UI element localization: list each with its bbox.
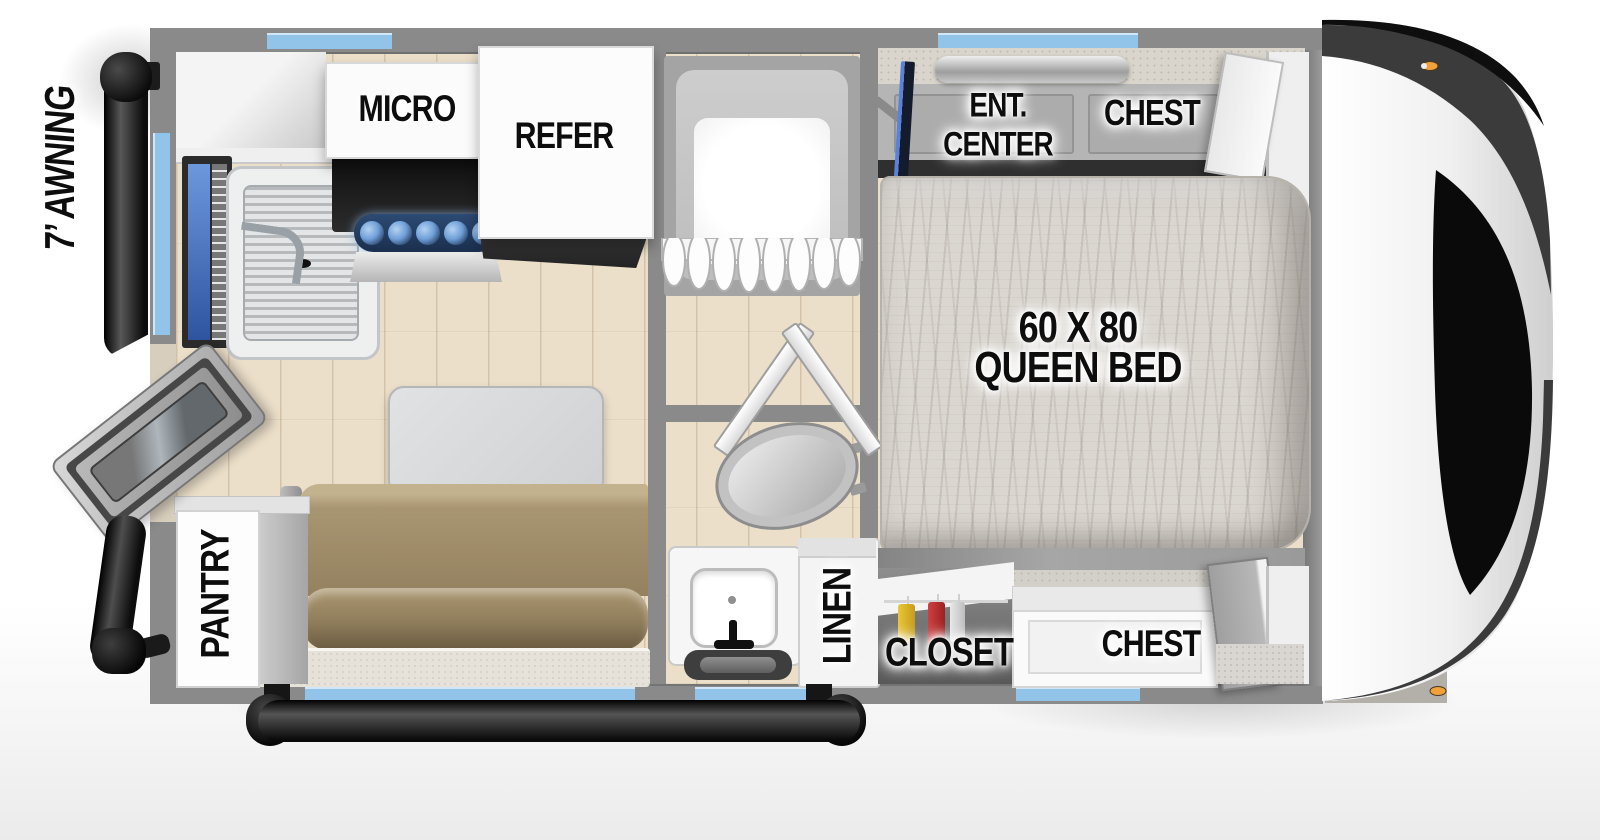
burner-icon xyxy=(388,221,412,245)
corner-cabinet xyxy=(176,52,326,162)
marker-light-icon xyxy=(1422,62,1438,71)
vanity-drain xyxy=(728,596,736,604)
awning-arm-elbow xyxy=(92,628,146,674)
hanger-icon xyxy=(958,594,960,602)
chest-top-label: CHEST xyxy=(1104,92,1200,134)
front-cap-corner xyxy=(1325,24,1345,96)
sofa-seat xyxy=(298,484,648,596)
hanger-icon xyxy=(907,596,909,604)
vanity-faucet-handle xyxy=(714,640,754,649)
window-top-left xyxy=(267,33,392,49)
microwave-label: MICRO xyxy=(358,88,455,130)
front-cap-body xyxy=(1322,24,1553,701)
bathroom-vanity xyxy=(668,546,802,666)
window-shade-roll xyxy=(935,56,1129,83)
linen-label: LINEN xyxy=(816,568,861,665)
window-left-wall xyxy=(153,133,170,335)
awning-roller-cap xyxy=(100,52,152,102)
window-blind-slats xyxy=(212,164,227,340)
cooktop-tray xyxy=(350,252,502,282)
marker-light-icon xyxy=(1421,63,1427,69)
entertainment-center-label: ENT. xyxy=(969,87,1026,126)
window-top-right xyxy=(938,33,1138,48)
floorplan-canvas: 7’ AWNING MICRO REFER ENT. CENTER CHEST … xyxy=(0,0,1600,840)
front-cap-top-swoosh xyxy=(1322,25,1551,295)
bedroom-carpet xyxy=(1216,644,1304,684)
closet-rod xyxy=(884,600,1008,603)
shower-curtain xyxy=(660,238,864,300)
bathroom-step xyxy=(684,650,792,680)
chest-bottom-label: CHEST xyxy=(1102,623,1201,665)
wall-left xyxy=(150,522,176,702)
bathroom-step-tread xyxy=(700,657,776,673)
linen-cabinet-top xyxy=(798,538,876,558)
burner-icon xyxy=(416,221,440,245)
awning-roller-bottom xyxy=(258,700,860,742)
awning-roller-left xyxy=(104,66,148,358)
entertainment-center-label: CENTER xyxy=(943,126,1053,165)
burner-icon xyxy=(360,221,384,245)
window-glass xyxy=(188,164,210,340)
front-cap-spoiler-edge xyxy=(1322,20,1544,126)
window-bottom-middle xyxy=(695,687,815,701)
front-cap-base xyxy=(1325,652,1447,703)
hanger-icon xyxy=(937,594,939,602)
awning-label: 7’ AWNING xyxy=(36,83,84,252)
queen-bed-label: QUEEN BED xyxy=(974,343,1181,393)
cooktop-burners xyxy=(354,214,498,252)
burner-icon xyxy=(444,221,468,245)
dinette-table xyxy=(388,386,604,496)
pantry-side-panel xyxy=(252,498,308,684)
window-bottom-left xyxy=(305,687,635,701)
kitchen-window-blinds xyxy=(182,156,232,348)
closet-label: CLOSET xyxy=(885,631,1013,676)
refrigerator-label: REFER xyxy=(515,115,614,157)
pantry-label: PANTRY xyxy=(194,529,239,658)
sofa-backrest xyxy=(302,588,648,650)
front-window xyxy=(1433,170,1532,595)
window-bottom-right xyxy=(1016,687,1140,701)
